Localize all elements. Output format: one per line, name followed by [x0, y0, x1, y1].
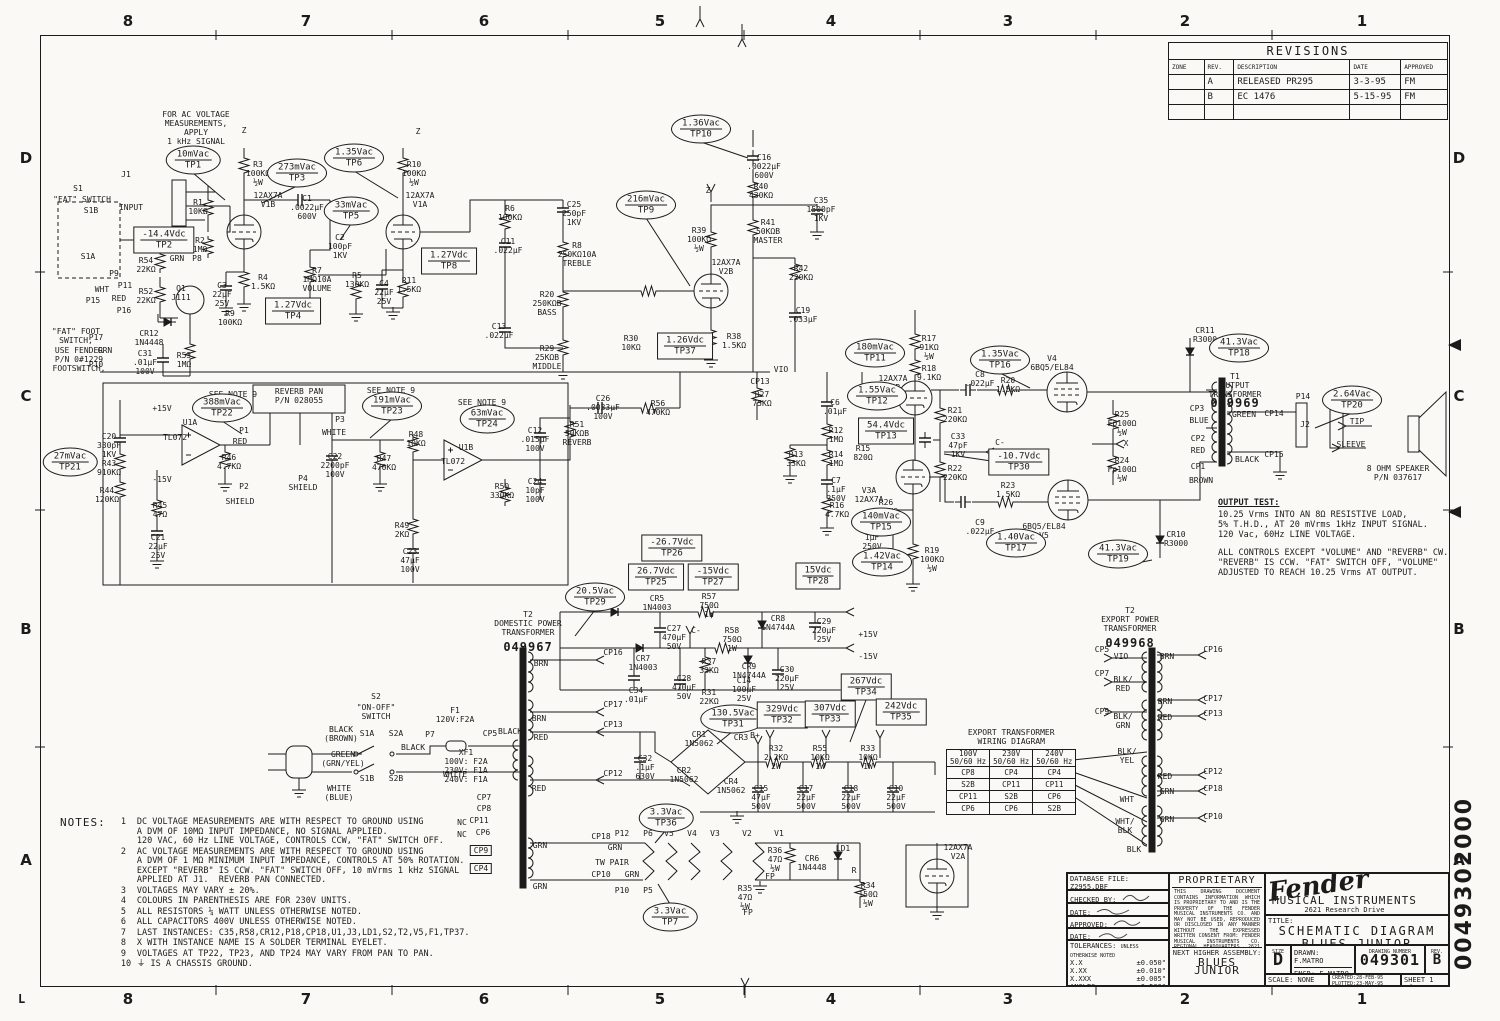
- component-label: T2 EXPORT POWER TRANSFORMER: [1101, 606, 1159, 633]
- zone-row-label: B: [1453, 620, 1464, 638]
- component-label: R20 1.5KΩ: [996, 376, 1020, 394]
- component-label: R57 750Ω 1W: [699, 592, 718, 619]
- test-point-tp3: 273mVacTP3: [267, 159, 327, 188]
- zone-column-label: 1: [1357, 990, 1367, 1008]
- component-label: +15V: [858, 630, 877, 639]
- revisions-cell: [1169, 75, 1205, 90]
- component-label: CR5 1N4003: [643, 594, 672, 612]
- test-point-tp25: 26.7VdcTP25: [628, 564, 684, 591]
- component-label: R16 4.7KΩ: [825, 501, 849, 519]
- component-label: VIO: [774, 365, 788, 374]
- test-point-value: 3.3Vac: [648, 808, 685, 819]
- component-label: "ON-OFF" SWITCH: [357, 703, 396, 721]
- database-file-value: Z2955.DBF: [1070, 883, 1108, 890]
- revisions-cell: [1169, 105, 1205, 120]
- component-label: CP16: [1203, 645, 1222, 654]
- component-label: C-: [995, 438, 1005, 447]
- component-label: CP5: [483, 729, 497, 738]
- component-label: S1: [73, 184, 83, 193]
- note-text: COLOURS IN PARENTHESIS ARE FOR 230V UNIT…: [137, 897, 352, 907]
- test-point-tp2: -14.4VdcTP2: [133, 227, 194, 254]
- component-label: C29 220µF 25V: [812, 617, 836, 644]
- component-label: Z: [416, 127, 421, 136]
- component-label: R50 330KΩ: [490, 482, 514, 500]
- note-item: 9VOLTAGES AT TP22, TP23, AND TP24 MAY VA…: [121, 950, 470, 960]
- zone-row-label: C: [1453, 387, 1464, 405]
- note-item: 1DC VOLTAGE MEASUREMENTS ARE WITH RESPEC…: [121, 818, 470, 847]
- test-point-id: TP25: [635, 578, 677, 588]
- zone-column-label: 3: [1003, 990, 1013, 1008]
- component-label: BLACK (BROWN): [324, 725, 358, 743]
- component-label: R31 22KΩ: [699, 688, 718, 706]
- component-label: V3: [710, 829, 720, 838]
- component-label: GRN: [625, 870, 639, 879]
- component-label: P14: [1296, 392, 1310, 401]
- test-point-id: TP35: [883, 713, 920, 723]
- component-label: R21 220KΩ: [943, 406, 967, 424]
- component-label: C6 .01µF: [823, 398, 847, 416]
- tolerance-value: ±0.500": [1136, 983, 1166, 986]
- tolerances-heading: TOLERANCES:: [1070, 942, 1116, 950]
- drawing-title-line1: SCHEMATIC DIAGRAM: [1279, 924, 1436, 938]
- test-point-id: TP12: [856, 397, 898, 407]
- test-point-value: 1.42Vac: [861, 552, 903, 563]
- component-label: 049967: [503, 643, 552, 652]
- component-label: FOR AC VOLTAGE MEASUREMENTS, APPLY 1 kHz…: [162, 110, 229, 146]
- test-point-value: 15Vdc: [802, 566, 833, 577]
- export-wiring-header: 230V 50/60 Hz: [990, 750, 1033, 767]
- test-point-value: 140mVac: [860, 512, 902, 523]
- zone-column-label: 7: [301, 990, 311, 1008]
- test-point-id: TP31: [709, 720, 756, 730]
- note-item: 8X WITH INSTANCE NAME IS A SOLDER TERMIN…: [121, 939, 470, 949]
- test-point-tp7: 3.3VacTP7: [643, 903, 698, 932]
- test-point-id: TP16: [979, 361, 1021, 371]
- component-label: C20 330pF 1KV: [97, 432, 121, 459]
- revisions-cell: 3-3-95: [1350, 75, 1401, 90]
- component-label: R25 Fp100Ω ½W: [1108, 410, 1137, 437]
- component-label: V1: [774, 829, 784, 838]
- component-label: R1 10KΩ: [188, 198, 207, 216]
- component-label: C1 .0022µF 600V: [290, 194, 324, 221]
- component-label: SLEEVE: [1337, 440, 1366, 449]
- component-label: CP9: [1095, 707, 1109, 716]
- test-point-tp26: -26.7VdcTP26: [641, 535, 702, 562]
- revisions-header: ZONE: [1169, 60, 1205, 75]
- component-label: P11: [118, 281, 132, 290]
- drawing-number: 049301: [1358, 956, 1422, 964]
- component-label: S2A: [389, 729, 403, 738]
- checked-by-label: CHECKED BY:: [1070, 896, 1116, 903]
- size-value: D: [1268, 956, 1288, 964]
- component-label: BRN: [1158, 697, 1172, 706]
- test-point-id: TP23: [371, 407, 413, 417]
- component-label: CP16: [603, 648, 622, 657]
- component-label: R58 750Ω 1W: [722, 626, 741, 653]
- export-wiring-cell: CP11: [1033, 779, 1076, 791]
- test-point-value: 10mVac: [175, 150, 212, 161]
- note-number: 8: [121, 939, 137, 949]
- component-label: WHT/ BLK: [1115, 817, 1134, 835]
- database-file-label: DATABASE FILE:: [1070, 875, 1129, 883]
- note-item: 5ALL RESISTORS ¼ WATT UNLESS OTHERWISE N…: [121, 908, 470, 918]
- rev-value: B: [1428, 956, 1446, 964]
- component-label: GRN: [608, 843, 622, 852]
- test-point-id: TP13: [865, 432, 907, 442]
- test-point-tp27: -15VdcTP27: [688, 564, 739, 591]
- test-point-value: 1.40Vac: [995, 533, 1037, 544]
- component-label: R30 10KΩ: [621, 334, 640, 352]
- component-label: R54 22KΩ: [136, 256, 155, 274]
- test-point-id: TP10: [680, 130, 722, 140]
- component-label: R40 430KΩ: [749, 182, 773, 200]
- component-label: P10: [89, 360, 103, 369]
- component-label: 12AX7A V1A: [406, 191, 435, 209]
- component-label: R44 120KΩ: [95, 486, 119, 504]
- component-label: R49 2KΩ: [395, 521, 409, 539]
- component-label: GREEN: [1232, 410, 1256, 419]
- test-point-id: TP20: [1331, 401, 1373, 411]
- test-point-tp8: 1.27VdcTP8: [421, 248, 477, 275]
- component-label: CR2 1N5062: [670, 766, 699, 784]
- tolerance-value: ±0.010": [1136, 967, 1166, 975]
- component-label: R42 220KΩ: [789, 264, 813, 282]
- component-label: C24 10pF 100V: [525, 477, 544, 504]
- drawn-by: DRAWN: F.MATRO: [1294, 947, 1352, 968]
- test-point-tp16: 1.35VacTP16: [970, 346, 1030, 375]
- component-label: S1A: [360, 729, 374, 738]
- test-point-value: 130.5Vac: [709, 709, 756, 720]
- component-label: C14 100µF 25V: [732, 676, 756, 703]
- component-label: CP2: [1191, 434, 1205, 443]
- component-label: GRN: [533, 882, 547, 891]
- component-label: P15: [86, 296, 100, 305]
- export-wiring-cell: CP4: [1033, 767, 1076, 779]
- component-label: BLACK: [401, 743, 425, 752]
- signature: [1112, 918, 1142, 927]
- component-label: P1: [239, 426, 249, 435]
- test-point-tp10: 1.36VacTP10: [671, 115, 731, 144]
- test-point-tp23: 191mVacTP23: [362, 392, 422, 421]
- component-label: R8 250KΩ10A TREBLE: [558, 241, 597, 268]
- tolerance-value: ±0.050": [1136, 959, 1166, 967]
- component-label: CP1: [1191, 462, 1205, 471]
- component-label: C19 .033µF: [789, 306, 818, 324]
- component-label: WHT: [1120, 795, 1134, 804]
- component-label: BLACK: [498, 727, 522, 736]
- zone-row-label: D: [20, 149, 32, 167]
- component-label: CP13: [603, 720, 622, 729]
- revisions-cell: 5-15-95: [1350, 90, 1401, 105]
- plotted-date: PLOTTED:23-MAY-95: [1332, 981, 1383, 987]
- notes-heading: NOTES:: [60, 818, 106, 828]
- component-label: RED: [534, 733, 548, 742]
- component-label: CP17: [1203, 694, 1222, 703]
- test-point-id: TP15: [860, 523, 902, 533]
- component-label: CP18: [591, 832, 610, 841]
- zone-column-label: 2: [1180, 990, 1190, 1008]
- component-label: T1 OUTPUT TRANSFORMER: [1209, 372, 1262, 399]
- zone-column-label: 1: [1357, 12, 1367, 30]
- component-label: Q1 J111: [171, 284, 190, 302]
- component-label: CR10 R3000: [1164, 530, 1188, 548]
- test-point-id: TP5: [333, 212, 370, 222]
- note-number: 10: [121, 960, 137, 970]
- component-label: FP: [743, 908, 753, 917]
- component-label: R22 220KΩ: [943, 464, 967, 482]
- component-label: R17 91KΩ ½W: [919, 334, 938, 361]
- component-label: C11 .022µF: [494, 237, 523, 255]
- revisions-cell: [1401, 105, 1448, 120]
- export-wiring-cell: CP6: [990, 803, 1033, 815]
- test-point-tp29: 20.5VacTP29: [565, 583, 625, 612]
- test-point-tp20: 2.64VacTP20: [1322, 386, 1382, 415]
- test-point-id: TP7: [652, 918, 689, 928]
- zone-row-label: D: [1453, 149, 1465, 167]
- test-point-tp18: 41.3VacTP18: [1209, 334, 1269, 363]
- component-label: C34 .01µF: [624, 686, 648, 704]
- component-label: RED: [532, 784, 546, 793]
- test-point-id: TP2: [140, 241, 187, 251]
- test-point-id: TP37: [664, 347, 706, 357]
- test-point-id: TP11: [854, 354, 896, 364]
- zone-row-label: A: [20, 851, 32, 869]
- component-label: 12AX7A V2A: [944, 843, 973, 861]
- component-label: GRN: [1160, 787, 1174, 796]
- export-wiring-cell: CP6: [947, 803, 990, 815]
- test-point-tp15: 140mVacTP15: [851, 508, 911, 537]
- note-number: 3: [121, 887, 137, 897]
- test-point-value: 41.3Vac: [1218, 338, 1260, 349]
- component-label: R53 1MΩ: [177, 351, 191, 369]
- tolerance-key: X.XXX: [1070, 975, 1091, 983]
- test-point-id: TP22: [201, 409, 243, 419]
- component-label: TL072: [441, 457, 465, 466]
- test-point-value: 1.26Vdc: [664, 336, 706, 347]
- schematic-sheet: 10mVacTP1273mVacTP31.35VacTP633mVacTP51.…: [0, 0, 1500, 1021]
- zone-row-label: B: [20, 620, 31, 638]
- test-point-id: TP17: [995, 544, 1037, 554]
- component-label: WHT: [95, 285, 109, 294]
- test-point-value: 267Vdc: [848, 677, 885, 688]
- title-block: DATABASE FILE: Z2955.DBF CHECKED BY: DAT…: [1066, 872, 1450, 987]
- component-label: V4 6BQ5/EL84: [1030, 354, 1073, 372]
- test-point-tp36: 3.3VacTP36: [639, 804, 694, 833]
- component-label: SHIELD: [226, 497, 255, 506]
- revisions-table: REVISIONS ZONEREV.DESCRIPTIONDATEAPPROVE…: [1168, 42, 1448, 120]
- test-point-id: TP14: [861, 563, 903, 573]
- test-point-tp11: 180mVacTP11: [845, 339, 905, 368]
- component-label: C-: [691, 626, 701, 635]
- test-point-id: TP4: [272, 312, 314, 322]
- test-point-tp9: 216mVacTP9: [616, 191, 676, 220]
- component-label: GREEN (GRN/YEL): [321, 750, 364, 768]
- test-point-tp33: 307VdcTP33: [805, 701, 856, 728]
- note-number: 5: [121, 908, 137, 918]
- zone-column-label: 4: [826, 12, 836, 30]
- revisions-cell: [1204, 105, 1234, 120]
- component-label: R12 1MΩ: [829, 426, 843, 444]
- component-label: LD1: [836, 844, 850, 853]
- tolerance-key: X.XX: [1070, 967, 1087, 975]
- component-label: -15V: [858, 652, 877, 661]
- note-text: DC VOLTAGE MEASUREMENTS ARE WITH RESPECT…: [137, 818, 444, 847]
- tolerance-row: X.XXX±0.005": [1070, 975, 1166, 983]
- note-number: 9: [121, 950, 137, 960]
- export-wiring-cell: S2B: [947, 779, 990, 791]
- component-label: 049968: [1105, 639, 1154, 648]
- component-label: TL072: [163, 433, 187, 442]
- test-point-value: 1.55Vac: [856, 386, 898, 397]
- signature: [1121, 892, 1151, 902]
- component-label: RED: [1158, 772, 1172, 781]
- note-item: 3VOLTAGES MAY VARY ± 20%.: [121, 887, 470, 897]
- export-wiring-cell: CP11: [947, 791, 990, 803]
- component-label: C28 470µF 50V: [672, 674, 696, 701]
- component-label: BLK: [1127, 845, 1141, 854]
- test-point-id: TP19: [1097, 555, 1139, 565]
- component-label: C12 .015µF 100V: [521, 426, 550, 453]
- test-point-value: 54.4Vdc: [865, 421, 907, 432]
- component-label: 12AX7A V2B: [712, 258, 741, 276]
- test-point-id: TP33: [812, 715, 849, 725]
- component-label: C3 22µF 25V: [212, 281, 231, 308]
- test-point-id: TP27: [695, 578, 732, 588]
- test-point-value: 41.3Vac: [1097, 544, 1139, 555]
- component-label: C10 22µF 500V: [886, 784, 905, 811]
- component-label: BLUE: [1189, 416, 1208, 425]
- test-point-value: 3.3Vac: [652, 907, 689, 918]
- component-label: WHITE: [443, 770, 467, 779]
- component-label: P10: [615, 886, 629, 895]
- company-address1: 2621 Research Drive: [1304, 906, 1384, 914]
- zone-column-label: 8: [123, 990, 133, 1008]
- scale-cell: SCALE: NONE: [1265, 974, 1329, 986]
- component-label: C33 47pF 1KV: [948, 432, 967, 459]
- component-label: GRN: [170, 254, 184, 263]
- test-point-value: -14.4Vdc: [140, 230, 187, 241]
- component-label: P3: [335, 415, 345, 424]
- test-point-id: TP29: [574, 598, 616, 608]
- component-label: R45 47Ω: [153, 501, 167, 519]
- test-point-id: TP6: [333, 159, 375, 169]
- component-label: C15 47µF 500V: [751, 784, 770, 811]
- revisions-header: APPROVED: [1401, 60, 1448, 75]
- component-label: 049969: [1210, 399, 1259, 408]
- component-label: R7 1MΩ10A VOLUME: [303, 266, 332, 293]
- test-point-tp34: 267VdcTP34: [841, 674, 892, 701]
- signature: [1095, 930, 1131, 939]
- test-point-id: TP36: [648, 819, 685, 829]
- component-label: BLACK: [1235, 455, 1259, 464]
- output-test-block: OUTPUT TEST: 10.25 Vrms INTO AN 8Ω RESIS…: [1218, 498, 1458, 586]
- vertical-part-number: 0049302000: [1452, 690, 1477, 970]
- component-label: V4: [687, 829, 697, 838]
- test-point-tp22: 388mVacTP22: [192, 394, 252, 423]
- component-label: BLK/ GRN: [1113, 712, 1132, 730]
- test-point-tp30: -10.7VdcTP30: [988, 449, 1049, 476]
- component-label: R29 25KΩB MIDDLE: [533, 344, 562, 371]
- zone-column-label: 3: [1003, 12, 1013, 30]
- component-label: C23 47µF 100V: [400, 547, 419, 574]
- test-point-value: 242Vdc: [883, 702, 920, 713]
- proprietary-heading: PROPRIETARY: [1172, 875, 1262, 888]
- output-test-para2: ALL CONTROLS EXCEPT "VOLUME" AND "REVERB…: [1218, 548, 1458, 578]
- test-point-tp5: 33mVacTP5: [324, 197, 379, 226]
- export-wiring-header: 100V 50/60 Hz: [947, 750, 990, 767]
- component-label: WHITE: [322, 428, 346, 437]
- export-wiring-header: 240V 50/60 Hz: [1033, 750, 1076, 767]
- test-point-value: 1.27Vdc: [272, 301, 314, 312]
- export-wiring-cell: CP4: [990, 767, 1033, 779]
- component-label: S2: [371, 692, 381, 701]
- component-label: CR8 1N4744A: [761, 614, 795, 632]
- output-test-para1: 10.25 Vrms INTO AN 8Ω RESISTIVE LOAD, 5%…: [1218, 510, 1458, 540]
- component-label: RED: [1191, 446, 1205, 455]
- component-label: R15 820Ω: [853, 444, 872, 462]
- revisions-title: REVISIONS: [1169, 43, 1448, 60]
- component-label: J2: [1300, 420, 1310, 429]
- component-label: CP10: [1203, 812, 1222, 821]
- test-point-id: TP3: [276, 174, 318, 184]
- test-point-tp13: 54.4VdcTP13: [858, 418, 914, 445]
- component-label: C22 2200pF 100V: [321, 452, 350, 479]
- test-point-value: 63mVac: [469, 409, 506, 420]
- component-label: R23 1.5KΩ: [996, 481, 1020, 499]
- zone-column-label: 6: [479, 12, 489, 30]
- component-label: R11 1.5KΩ: [397, 276, 421, 294]
- component-label: CP18: [1203, 784, 1222, 793]
- component-label: CP7: [477, 793, 491, 802]
- test-point-value: 1.36Vac: [680, 119, 722, 130]
- component-label: R6 100KΩ: [498, 204, 522, 222]
- revisions-cell: [1169, 90, 1205, 105]
- component-label: GRN: [533, 841, 547, 850]
- zone-column-label: 7: [301, 12, 311, 30]
- export-wiring-title: EXPORT TRANSFORMER WIRING DIAGRAM: [946, 728, 1076, 746]
- component-label: R37 33KΩ: [699, 657, 718, 675]
- component-label: X: [1124, 439, 1129, 448]
- component-label: R56 470KΩ: [646, 399, 670, 417]
- note-number: 2: [121, 848, 137, 886]
- component-label: CR12 1N4448: [135, 329, 164, 347]
- date2-label: DATE:: [1070, 933, 1091, 940]
- test-point-tp32: 329VdcTP32: [757, 702, 808, 729]
- test-point-value: 180mVac: [854, 343, 896, 354]
- test-point-value: -10.7Vdc: [995, 452, 1042, 463]
- zone-column-label: 6: [479, 990, 489, 1008]
- test-point-tp12: 1.55VacTP12: [847, 382, 907, 411]
- component-label: C31 .01µF 100V: [133, 349, 157, 376]
- component-label: R18 9.1KΩ: [917, 364, 941, 382]
- test-point-value: 273mVac: [276, 163, 318, 174]
- note-item: 10⏚ IS A CHASSIS GROUND.: [121, 960, 470, 970]
- component-label: C30 220µF 25V: [775, 665, 799, 692]
- component-label: INPUT: [119, 203, 143, 212]
- component-label: R2 1MΩ: [193, 236, 207, 254]
- component-label: P2: [239, 482, 249, 491]
- component-label: S1A: [81, 252, 95, 261]
- component-label: BRN: [534, 659, 548, 668]
- component-label: C9 .022µF: [966, 518, 995, 536]
- component-label: P16: [117, 306, 131, 315]
- test-point-id: TP28: [802, 577, 833, 587]
- test-point-value: 33mVac: [333, 201, 370, 212]
- component-label: +15V: [152, 404, 171, 413]
- drawing-title-line2: BLUES JUNIOR: [1302, 937, 1413, 945]
- test-point-id: TP8: [428, 262, 470, 272]
- component-label: P12: [615, 829, 629, 838]
